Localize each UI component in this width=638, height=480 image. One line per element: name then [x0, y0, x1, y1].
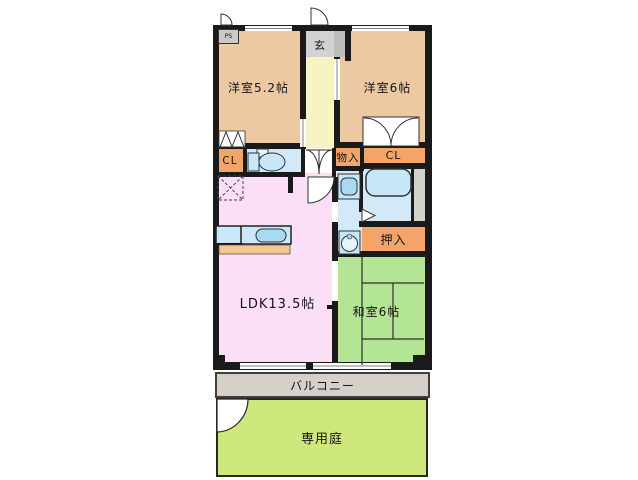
wall: [332, 251, 426, 257]
storage-monoiri-label: 物入: [337, 150, 360, 165]
room-western-5-2: 洋室5.2帖: [216, 31, 301, 144]
private-garden: 専用庭: [216, 398, 428, 477]
small-window-arc-icon: [221, 14, 232, 25]
room-ldk-label: LDK13.5帖: [240, 293, 316, 312]
entrance-hall: 玄: [306, 31, 334, 58]
wall: [359, 221, 426, 227]
entrance-step: [334, 31, 345, 57]
door-gap-western-6: [334, 59, 340, 100]
wall: [359, 167, 363, 212]
storage-monoiri: 物入: [334, 148, 362, 167]
window-sliding-ldk: [240, 363, 306, 369]
wall: [362, 163, 426, 169]
closet-oshiire-label: 押入: [380, 231, 406, 248]
wall: [213, 25, 219, 370]
room-japanese-6: 和室6帖: [336, 257, 425, 365]
wall: [345, 28, 351, 61]
window: [245, 26, 292, 31]
door-gap-washroom: [332, 202, 338, 222]
pipe-space: [414, 168, 425, 223]
toilet-room: [246, 148, 302, 174]
entrance-label: 玄: [314, 37, 326, 53]
closet-left-label: CL: [222, 155, 237, 167]
room-japanese-6-label: 和室6帖: [353, 303, 401, 320]
room-western-6-label: 洋室6帖: [364, 79, 412, 96]
window-sliding-washitsu: [313, 363, 391, 369]
wall: [411, 168, 414, 223]
closet-right-label: CL: [386, 149, 402, 162]
entrance-door-arc-icon: [311, 8, 328, 25]
wall: [213, 355, 225, 363]
wall: [288, 172, 293, 193]
balcony-label: バルコニー: [290, 377, 355, 394]
window: [352, 26, 409, 31]
hallway: [306, 57, 334, 149]
floor-plan: 洋室5.2帖 洋室6帖 玄 CL 物入 CL 押入 LDK13.5帖 和室6帖: [0, 0, 638, 480]
wall: [413, 355, 426, 363]
balcony: バルコニー: [215, 372, 430, 398]
wall: [216, 143, 306, 149]
pipe-shaft-box: PS: [218, 29, 239, 44]
room-ldk: LDK13.5帖: [217, 173, 338, 365]
room-western-6: 洋室6帖: [338, 31, 425, 143]
door-gap-japanese-room: [332, 261, 338, 301]
door-gap-western-5-2: [300, 119, 306, 147]
wall: [243, 148, 247, 174]
bathroom: [362, 166, 414, 223]
wall: [334, 142, 426, 148]
wall: [332, 148, 336, 177]
pipe-shaft-label: PS: [225, 33, 232, 40]
closet-oshiire: 押入: [362, 226, 425, 252]
wall: [425, 25, 432, 370]
room-western-5-2-label: 洋室5.2帖: [228, 79, 289, 96]
closet-left: CL: [216, 148, 244, 174]
private-garden-label: 専用庭: [301, 428, 343, 447]
